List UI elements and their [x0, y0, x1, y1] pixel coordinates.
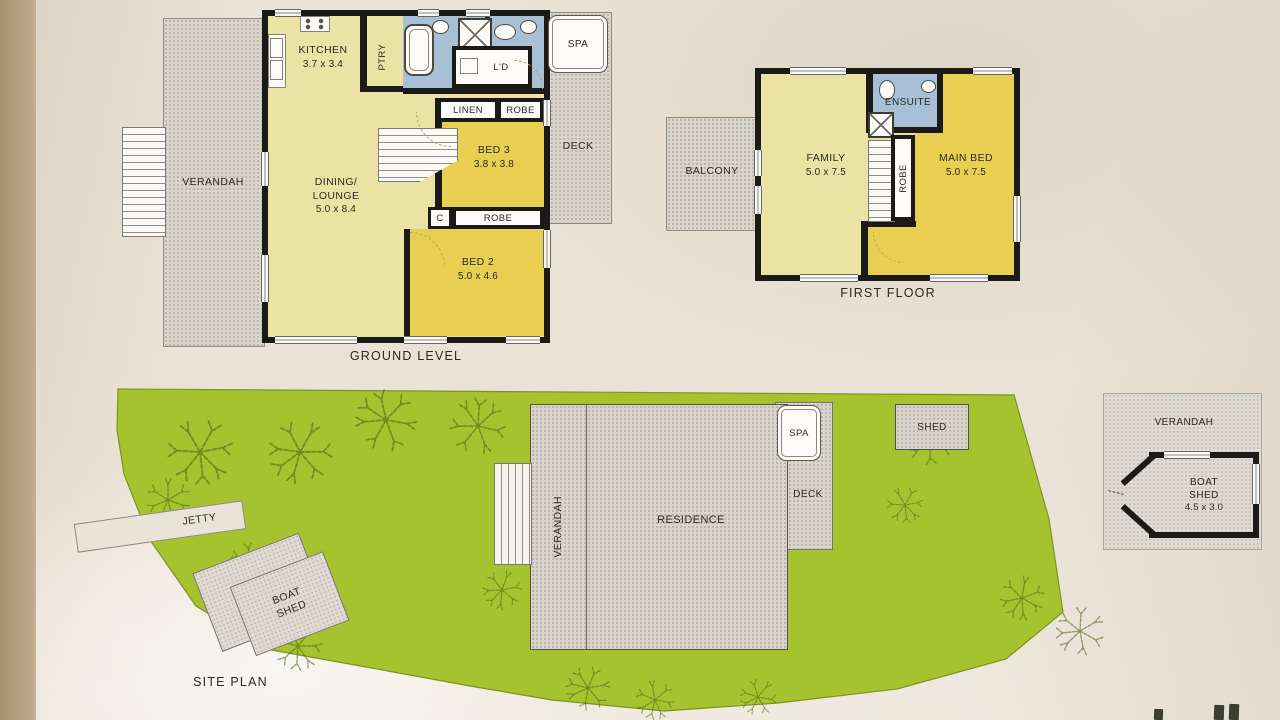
window [466, 9, 490, 17]
floor-plan-photo: VERANDAH SPA DECK L'D PTRY KITCHEN 3.7 x… [0, 0, 1280, 720]
detail-boat-shed-label: BOAT SHED 4.5 x 3.0 [1159, 476, 1249, 514]
residence-verandah-divider [586, 405, 587, 649]
window [1013, 196, 1021, 242]
window [800, 274, 858, 282]
wall-angled [1121, 504, 1158, 538]
window [1164, 451, 1210, 459]
site-spa-label: SPA [789, 428, 809, 439]
first-main-bed-label: MAIN BED 5.0 x 7.5 [923, 152, 1009, 179]
first-robe-label: ROBE [898, 164, 909, 193]
cooktop-icon [300, 16, 330, 32]
ground-level-title: GROUND LEVEL [316, 348, 496, 364]
ground-spa-label: SPA [568, 39, 588, 50]
basin-icon [520, 20, 537, 34]
wall [861, 221, 868, 275]
wall [1149, 532, 1259, 538]
ground-spa: SPA [548, 15, 608, 73]
site-boat-shed-label: BOAT SHED [270, 585, 309, 622]
ground-laundry-label: L'D [493, 62, 508, 73]
window [261, 152, 269, 186]
site-spa: SPA [777, 405, 821, 461]
balcony-door [754, 150, 762, 176]
ground-robe-bed3: ROBE [497, 98, 544, 122]
basin-icon [432, 20, 449, 34]
detail-verandah-label: VERANDAH [1129, 416, 1239, 429]
window [930, 274, 988, 282]
first-floor-title: FIRST FLOOR [798, 285, 978, 301]
ground-bed2-label: BED 2 5.0 x 4.6 [436, 256, 520, 283]
first-floor-outline: ENSUITE ROBE FAMILY 5.0 x 7.5 MAIN BED 5… [755, 68, 1020, 281]
ground-linen-label: LINEN [453, 105, 483, 116]
window [404, 336, 447, 344]
site-residence-stairs [494, 463, 532, 565]
site-shed: SHED [895, 404, 969, 450]
site-jetty-label: JETTY [159, 508, 240, 533]
window [418, 9, 439, 17]
logo-fragment [1229, 704, 1240, 720]
toilet-icon [494, 24, 516, 40]
window [543, 230, 551, 268]
ground-pantry-label: PTRY [371, 24, 395, 90]
ground-deck-label: DECK [550, 140, 606, 154]
ground-robe-bed2: ROBE [452, 207, 544, 229]
first-family-label: FAMILY 5.0 x 7.5 [776, 152, 876, 179]
site-shed-label: SHED [917, 422, 946, 433]
first-robe: ROBE [891, 135, 915, 221]
basin-icon [921, 80, 936, 93]
ground-floor-outline: L'D PTRY KITCHEN 3.7 x 3.4 LINEN ROBE BE… [262, 10, 550, 343]
ground-cupboard: C [428, 207, 452, 229]
ground-robe-bed2-label: ROBE [484, 213, 513, 224]
site-plan-title: SITE PLAN [158, 674, 303, 690]
ground-kitchen-label: KITCHEN 3.7 x 3.4 [278, 44, 368, 71]
ground-bed3-label: BED 3 3.8 x 3.8 [452, 144, 536, 171]
window [261, 255, 269, 302]
first-ensuite-label: ENSUITE [873, 96, 943, 109]
boat-shed-detail: VERANDAH BOAT SHED 4.5 x 3.0 [1103, 393, 1262, 550]
ground-robe-bed3-label: ROBE [506, 105, 535, 116]
window [506, 336, 540, 344]
bathtub-icon [404, 24, 434, 76]
window [973, 67, 1012, 75]
window [275, 336, 357, 344]
ground-verandah-stairs [122, 127, 166, 237]
ground-dining-label: DINING/ LOUNGE 5.0 x 8.4 [286, 176, 386, 216]
window [754, 186, 762, 214]
door-dash [1108, 490, 1124, 495]
first-balcony-label: BALCONY [668, 165, 756, 179]
site-residence-label: RESIDENCE [611, 513, 771, 527]
site-residence: VERANDAH RESIDENCE [530, 404, 788, 650]
site-deck-label: DECK [782, 488, 834, 501]
ground-verandah-label: VERANDAH [168, 176, 258, 190]
logo-fragment [1214, 705, 1225, 720]
site-residence-verandah-label: VERANDAH [546, 467, 572, 587]
window [275, 9, 301, 17]
window [1252, 464, 1260, 504]
window [790, 67, 846, 75]
logo-fragment [1154, 709, 1163, 720]
laundry-sink-icon [460, 58, 478, 74]
ground-cupboard-label: C [436, 213, 443, 224]
window [543, 100, 551, 126]
wall-angled [1121, 452, 1158, 486]
